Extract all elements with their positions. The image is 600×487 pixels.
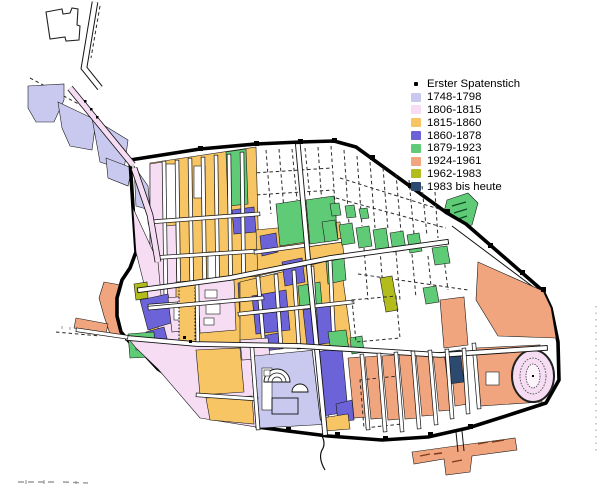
legend-item-p1815: 1815-1860: [411, 116, 520, 129]
legend-swatch-p1815: [411, 118, 421, 127]
legend-item-p1860: 1860-1878: [411, 129, 520, 142]
legend-label: 1924-1961: [427, 155, 481, 167]
legend-label: 1879-1923: [427, 142, 481, 154]
legend-swatch-p1983: [411, 182, 421, 191]
scalebar-remnant: [18, 480, 88, 484]
legend-swatch-p1962: [411, 169, 421, 178]
legend-label: 1860-1878: [427, 130, 481, 142]
suburban-northwest: [28, 2, 132, 186]
legend-item-p1962: 1962-1983: [411, 168, 520, 181]
legend-label: 1748-1798: [427, 91, 481, 103]
legend-item-p1924: 1924-1961: [411, 155, 520, 168]
amphitheatre: [512, 350, 554, 402]
legend-swatch-p1806: [411, 105, 421, 114]
legend-label: 1962-1983: [427, 168, 481, 180]
legend-label: 1983 bis heute: [427, 181, 502, 193]
legend-item-spatenstich: Erster Spatenstich: [411, 78, 520, 91]
legend-swatch-p1748: [411, 93, 421, 102]
legend-swatch-p1924: [411, 157, 421, 166]
legend-swatch-p1879: [411, 144, 421, 153]
legend-item-p1806: 1806-1815: [411, 104, 520, 117]
legend-label: Erster Spatenstich: [427, 78, 520, 90]
legend-dot-marker: [411, 80, 421, 89]
legend-item-p1748: 1748-1798: [411, 91, 520, 104]
legend-item-p1983: 1983 bis heute: [411, 180, 520, 193]
villa-building-outline: [46, 8, 80, 41]
pompeii-excavation-map-page: Erster Spatenstich1748-17981806-18151815…: [0, 0, 600, 487]
legend-label: 1815-1860: [427, 117, 481, 129]
legend: Erster Spatenstich1748-17981806-18151815…: [411, 78, 520, 193]
pompeii-map-canvas: [0, 0, 600, 487]
legend-swatch-p1860: [411, 131, 421, 140]
legend-label: 1806-1815: [427, 104, 481, 116]
legend-item-p1879: 1879-1923: [411, 142, 520, 155]
porta-stabia-road: [321, 436, 325, 470]
